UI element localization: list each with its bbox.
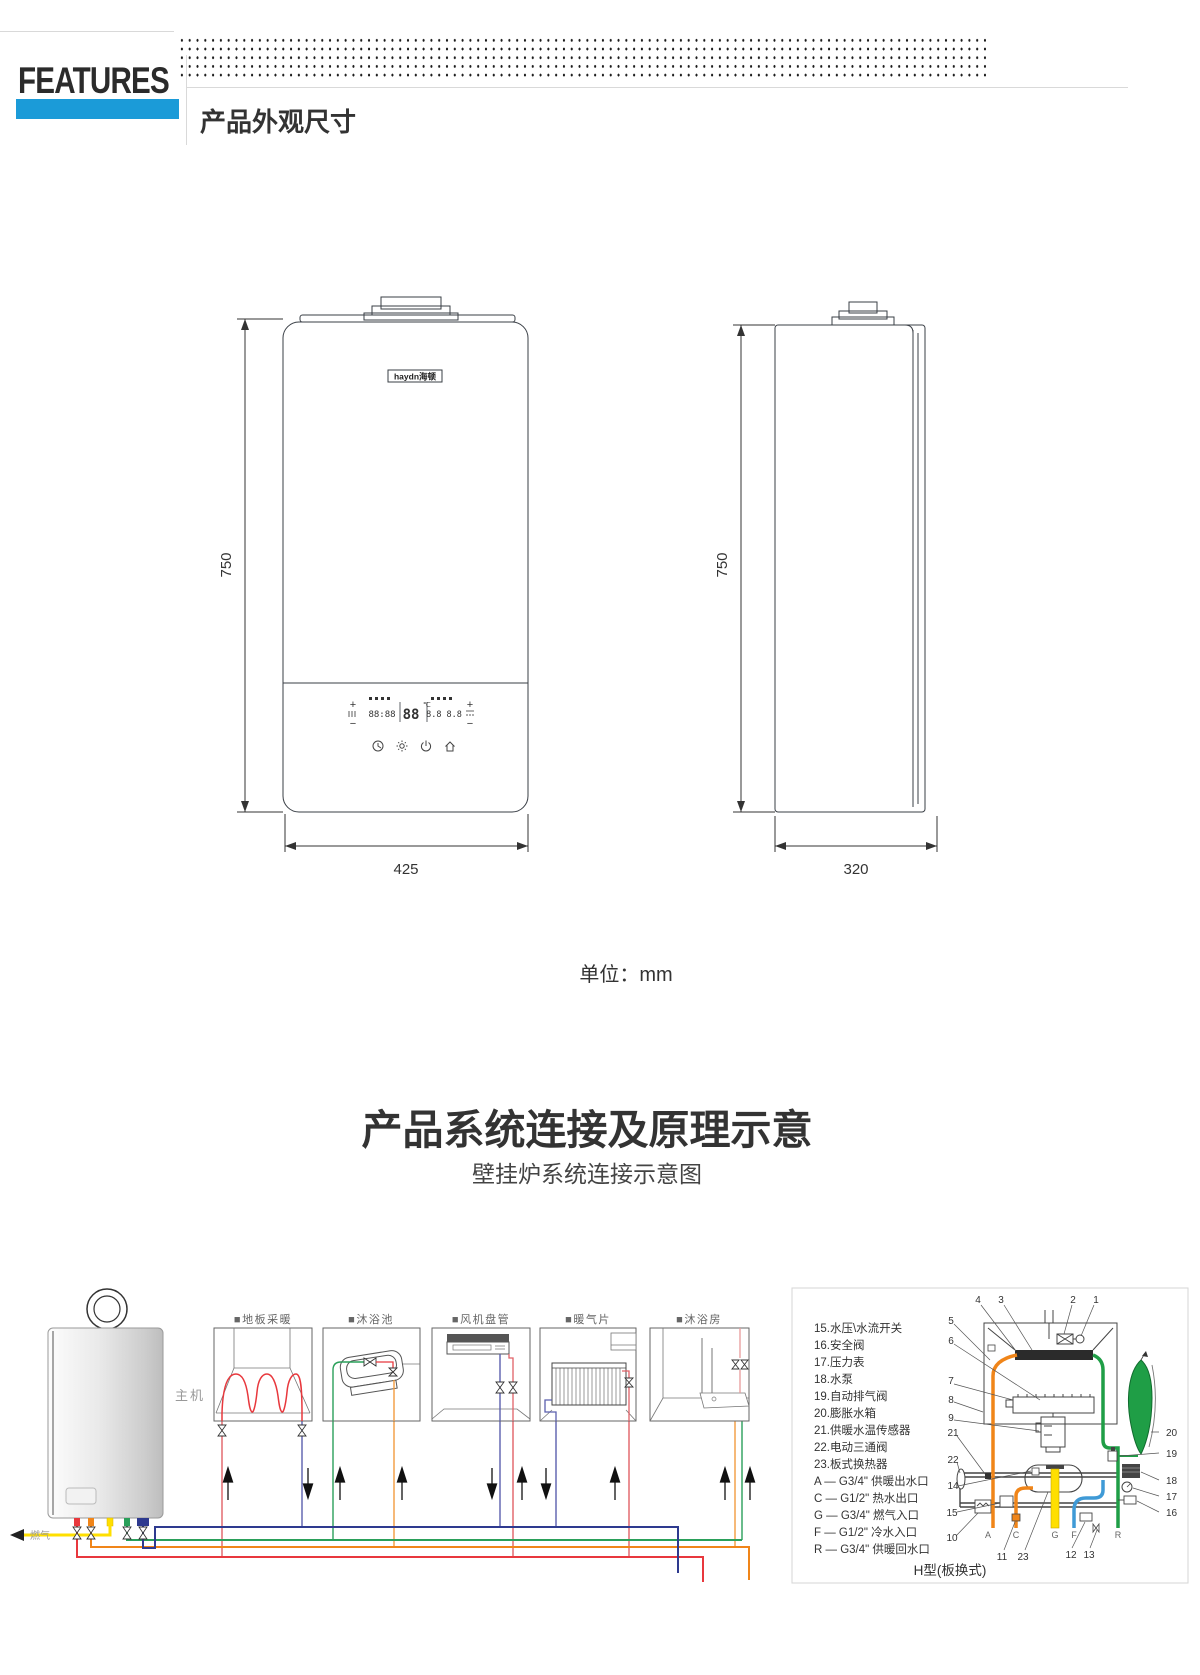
front-dim-arrows — [241, 319, 528, 850]
section1-title: 产品外观尺寸 — [200, 102, 356, 139]
up-arrow — [224, 1468, 233, 1500]
callout: 14 — [947, 1481, 959, 1492]
callout: 22 — [947, 1455, 959, 1466]
top-divider — [0, 31, 174, 32]
unit-label: 单位：mm — [579, 958, 672, 987]
status-icons-left — [369, 697, 390, 700]
left-minus: − — [350, 718, 356, 730]
home-icon — [446, 742, 455, 751]
features-label: FEATURES — [18, 62, 169, 99]
status-icons-right — [431, 697, 452, 700]
up-arrow — [518, 1468, 527, 1500]
up-arrow — [611, 1468, 620, 1500]
callout: 12 — [1065, 1550, 1077, 1561]
callout: 21 — [947, 1428, 959, 1439]
pump — [1122, 1464, 1140, 1478]
callout: 7 — [948, 1376, 954, 1387]
right-minus: − — [467, 718, 473, 730]
front-height-label: 750 — [218, 552, 235, 577]
panel-label: ■风机盘管 — [452, 1312, 510, 1326]
callout: 13 — [1083, 1550, 1095, 1561]
sun-icon — [397, 741, 408, 752]
hot-water-pipe — [91, 1526, 749, 1580]
side-height-label: 750 — [714, 552, 731, 577]
product-detail-page: FEATURES 产品外观尺寸 haydn海顿 + − 88: — [0, 0, 1200, 1675]
boiler-screen — [66, 1488, 96, 1504]
temp-digits: 88 — [403, 707, 420, 723]
panel-labels: ■地板采暖 ■沐浴池 ■风机盘管 ■暖气片 ■沐浴房 — [234, 1312, 722, 1326]
legend-port: C — G1/2" 热水出口 — [814, 1491, 918, 1505]
legend-port: A — G3/4" 供暖出水口 — [814, 1474, 929, 1488]
brand-logo: haydn海顿 — [394, 372, 437, 382]
bus-pipes — [24, 1524, 749, 1582]
front-dimensions — [237, 319, 528, 852]
legend-port: F — G1/2" 冷水入口 — [814, 1526, 917, 1539]
panel-label: ■地板采暖 — [234, 1312, 292, 1326]
side-dimensions — [733, 325, 937, 852]
legend-item: 21.供暖水温传感器 — [814, 1423, 911, 1437]
legend-item: 18.水泵 — [814, 1373, 853, 1386]
header-divider — [186, 55, 187, 145]
callout: 19 — [1166, 1449, 1178, 1460]
cold-water-pipe — [143, 1526, 678, 1573]
callout: 15 — [946, 1508, 958, 1519]
side-dim-arrows — [737, 325, 937, 850]
callout: 4 — [975, 1295, 981, 1306]
clock-icon — [373, 741, 383, 751]
up-ar row — [746, 1468, 755, 1500]
legend-port: R — G3/4" 供暖回水口 — [814, 1542, 930, 1556]
down-arrow — [304, 1468, 313, 1498]
callout: 18 — [1166, 1476, 1178, 1487]
callout: 2 — [1070, 1295, 1076, 1306]
drop-pipes — [222, 1421, 742, 1557]
gas-arrow — [10, 1529, 24, 1541]
callout: 17 — [1166, 1492, 1178, 1503]
heating-supply-pipe — [77, 1526, 703, 1582]
power-icon — [421, 741, 430, 751]
callout: 20 — [1166, 1428, 1178, 1439]
down-arrow — [542, 1468, 551, 1498]
front-width-label: 425 — [393, 861, 418, 878]
system-diagram: 主机 — [0, 1230, 1200, 1675]
legend-item: 16.安全阀 — [814, 1338, 865, 1352]
pressure-digits: 8.8 8.8 — [426, 710, 462, 720]
panel-label: ■暖气片 — [565, 1312, 611, 1326]
panel-label: ■沐浴池 — [348, 1313, 394, 1326]
section2-title: 产品系统连接及原理示意 — [362, 1096, 813, 1156]
port-letter: G — [1051, 1530, 1058, 1540]
time-digits: 88:88 — [368, 710, 395, 720]
section2-subtitle: 壁挂炉系统连接示意图 — [472, 1155, 702, 1189]
callout: 10 — [946, 1533, 958, 1544]
dotted-pattern — [178, 36, 986, 80]
schematic-caption: H型(板换式) — [914, 1563, 987, 1578]
boiler-unit — [48, 1289, 163, 1518]
air-vent — [1108, 1451, 1117, 1461]
side-width-label: 320 — [843, 861, 868, 878]
callout: 23 — [1017, 1552, 1029, 1563]
features-accent-bar — [16, 99, 179, 119]
legend-item: 15.水压\水流开关 — [814, 1321, 903, 1335]
temp-unit: ℃ — [423, 702, 431, 709]
port-letter: C — [1013, 1530, 1020, 1540]
legend-item: 23.板式换热器 — [814, 1457, 888, 1471]
callout: 16 — [1166, 1508, 1178, 1519]
flow-switch — [1000, 1496, 1013, 1507]
left-plus: + — [350, 699, 356, 711]
port-letter: A — [985, 1530, 991, 1540]
callout: 6 — [948, 1336, 954, 1347]
callout: 11 — [997, 1552, 1008, 1563]
boiler-display: + − 88:88 88 ℃ 8.8 8.8 + − — [349, 697, 474, 752]
shower-icon — [466, 711, 474, 716]
callout: 3 — [998, 1295, 1004, 1306]
port-g-pipe — [1051, 1469, 1059, 1528]
down-arrow — [488, 1468, 497, 1498]
legend-item: 17.压力表 — [814, 1355, 865, 1369]
panel-label: ■沐浴房 — [676, 1313, 722, 1326]
header-underline — [186, 87, 1128, 88]
up-arrow — [398, 1468, 407, 1500]
legend-item: 20.膨胀水箱 — [814, 1406, 876, 1420]
port-letter: F — [1071, 1530, 1077, 1540]
callout: 9 — [948, 1413, 954, 1424]
callout: 5 — [948, 1316, 954, 1327]
port-letter: R — [1115, 1530, 1122, 1540]
gas-label: 燃气 — [30, 1529, 50, 1542]
side-view — [775, 302, 925, 812]
return-pipe — [127, 1526, 742, 1540]
callout: 8 — [948, 1395, 954, 1406]
legend-port: G — G3/4" 燃气入口 — [814, 1508, 919, 1522]
legend-item: 19.自动排气阀 — [814, 1389, 888, 1403]
right-plus: + — [467, 699, 473, 711]
up-arrow — [336, 1468, 345, 1500]
legend-item: 22.电动三通阀 — [814, 1440, 888, 1454]
heat-exchanger — [1015, 1350, 1093, 1360]
callout: 1 — [1093, 1295, 1099, 1306]
boiler-label: 主机 — [175, 1388, 205, 1403]
flow-arrows — [224, 1468, 755, 1500]
radiator-icon — [349, 711, 355, 717]
dimension-drawing: haydn海顿 + − 88:88 88 ℃ 8.8 8.8 + — [0, 270, 1200, 890]
up-arrow — [721, 1468, 730, 1500]
